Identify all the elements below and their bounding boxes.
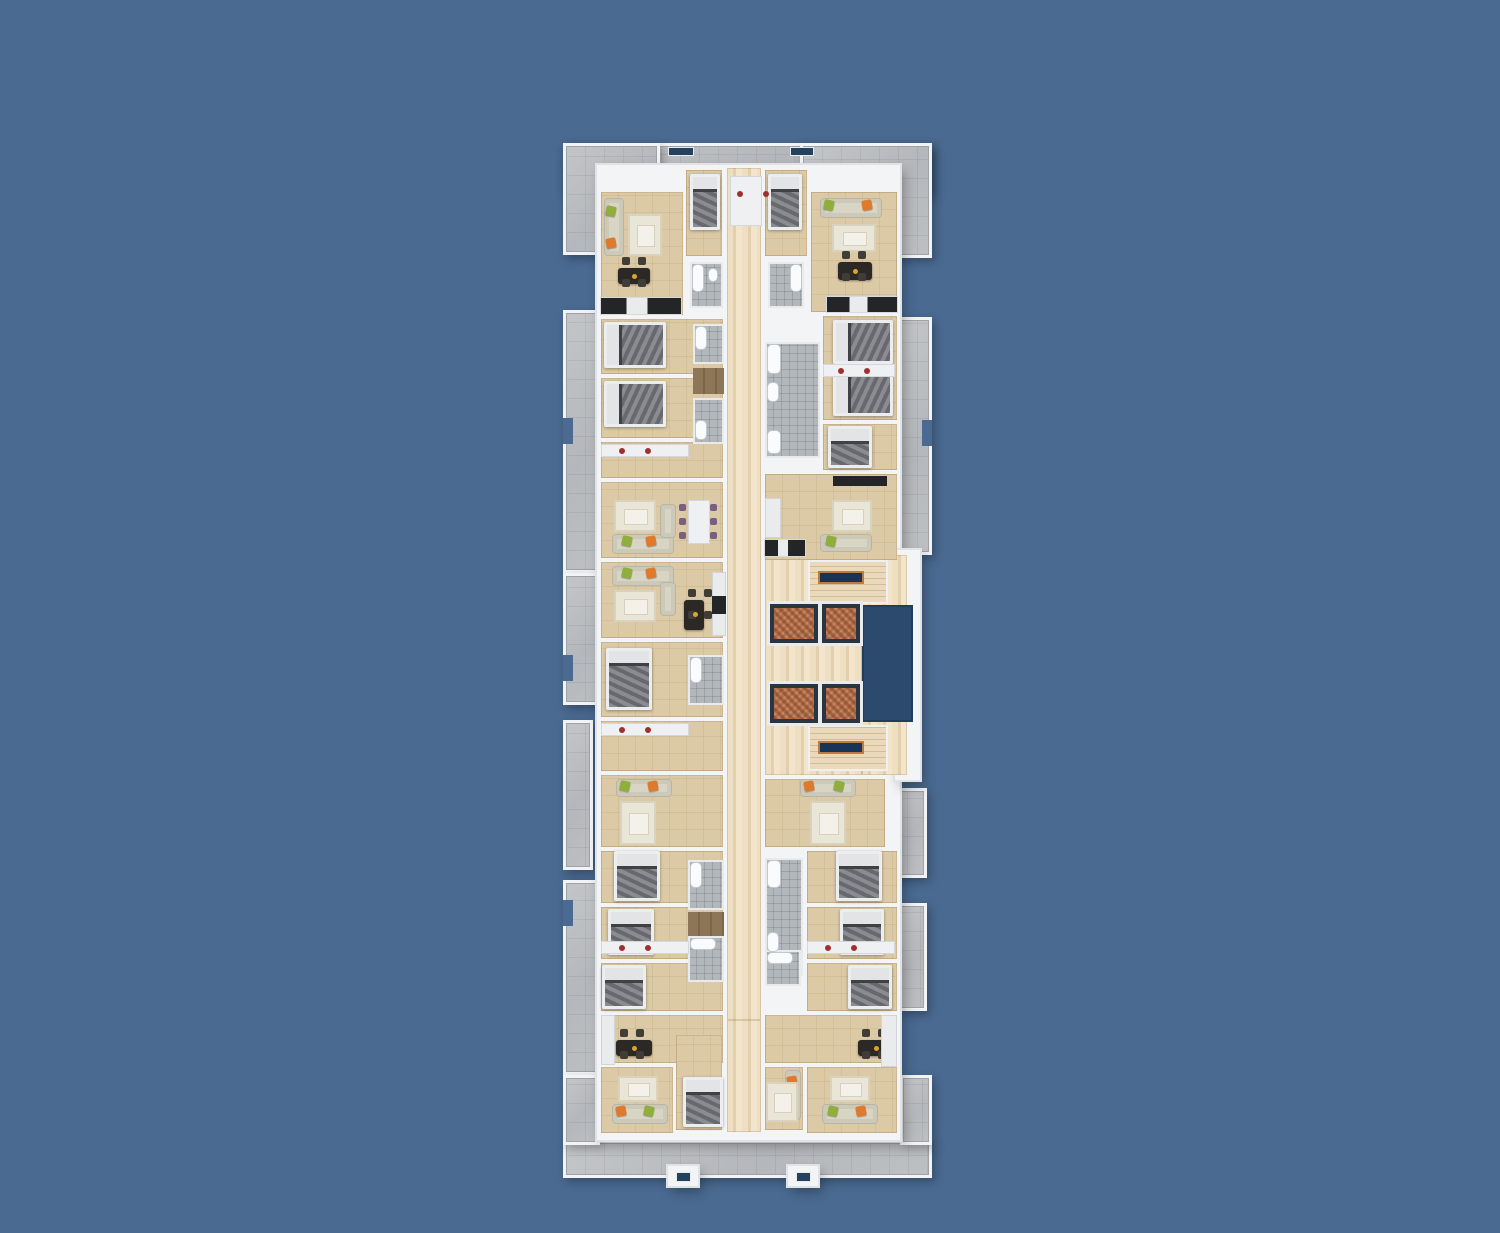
vanity-1 [767,952,793,964]
rug-left-2 [614,590,656,622]
pillow-orange-2 [861,199,873,211]
bed-lower-left-1 [614,851,660,901]
stair-north-landing [818,571,864,584]
dining-table-white [688,500,710,544]
kitchen-counter-bottom-right [881,1015,897,1067]
pillow-orange-3 [645,535,657,547]
bed-lower-right-3 [848,965,892,1009]
bathtub-2 [790,264,802,292]
pillow-orange-8 [855,1105,867,1117]
elevator-3 [770,684,818,723]
rug-top-right [832,224,876,252]
kitchen-counter-right-mid [765,498,781,538]
bathtub-6 [767,430,781,454]
bed-right-3 [828,426,872,468]
pillow-orange-7 [615,1105,627,1117]
pillow-green-2 [823,199,835,211]
vanity-2 [690,938,716,950]
corridor-main [727,168,761,1020]
pillow-orange-4 [645,567,657,579]
sofa-left-1b [660,504,676,538]
toilet-1 [708,268,718,282]
balcony-bottom-band [563,1140,932,1178]
parapet-gap-left-1 [563,418,573,444]
dining-table-top-right [838,262,872,280]
corridor-south [727,1020,761,1132]
pillow-green-7 [643,1105,655,1117]
balcony-bottom-left [563,1075,600,1145]
pillow-green-1 [605,205,617,217]
bed-left-3 [606,648,652,710]
pillow-orange-1 [605,237,617,249]
rug-bottom-right [830,1076,870,1102]
bathtub-7 [690,657,702,683]
tv-unit-right-mid [833,476,887,486]
bathtub-3 [695,326,707,350]
dining-table-left-2 [684,600,704,630]
bathtub-9 [767,860,781,888]
rug-lower-left [620,801,656,845]
dining-table-bottom-left [616,1040,652,1056]
dresser-left-2 [601,723,689,736]
balcony-left-lower [563,720,593,870]
hall-wood-upper [693,368,724,394]
pillow-green-3 [621,535,633,547]
floor-plan-stage [0,0,1500,1233]
stoop-window-left [676,1172,691,1182]
elevator-2 [822,604,860,643]
desk-vestibule [730,176,762,226]
parapet-gap-left-3 [563,900,573,926]
toilet-2 [767,382,779,402]
dresser-lower-right [807,941,895,954]
bed-lower-right-1 [836,851,882,901]
balcony-bottom-right [900,1075,932,1145]
kitchen-right-mid [765,540,805,556]
bed-bottom-center [683,1077,723,1127]
dresser-right [823,364,895,377]
pillow-orange-5 [647,780,659,792]
balcony-right-lower [898,903,927,1011]
bathtub-5 [767,344,781,374]
kitchen-appliance-left-mid [712,596,726,614]
sofa-left-2b [660,582,676,616]
dresser-lower-left [601,941,689,954]
bed-lower-left-3 [602,965,646,1009]
pillow-green-5 [619,780,631,792]
bed-right-1 [833,320,893,364]
dresser-left-1 [601,444,689,457]
rug-bottom-left [618,1076,658,1102]
bed-left-1 [604,322,666,368]
stoop-window-right [796,1172,811,1182]
rug-left-1 [614,500,656,532]
elevator-1 [770,604,818,643]
pillow-green-9 [825,535,837,547]
rug-lower-right [810,801,846,845]
rug-top-left [628,214,662,256]
pillow-green-6 [833,780,845,792]
pillow-orange-6 [803,780,815,792]
elevator-shaft-void [862,605,913,722]
toilet-3 [767,932,779,952]
parapet-gap-right-1 [922,420,932,446]
rug-bottom-center [766,1082,798,1122]
rug-right-mid [832,500,872,532]
parapet-window-right [790,147,814,156]
elevator-4 [822,684,860,723]
parapet-gap-left-2 [563,655,573,681]
stair-south-landing [818,741,864,754]
dining-table-top-left [618,268,650,284]
bed-left-2 [604,381,666,427]
parapet-window-left [668,147,694,156]
bed-top-center-left [690,174,720,230]
bathtub-8 [690,862,702,888]
bed-top-center-right [768,174,802,230]
kitchen-top-left [601,298,681,314]
bathtub-4 [695,420,707,440]
pillow-green-4 [621,567,633,579]
bathtub-1 [692,264,704,292]
hall-wood-lower [688,912,724,936]
bed-right-2 [833,372,893,416]
kitchen-counter-bottom-left [601,1015,615,1065]
kitchen-top-right [827,297,897,312]
render-background: { "meta": { "description": "Top-down 3D … [0,0,1500,1233]
pillow-green-8 [827,1105,839,1117]
